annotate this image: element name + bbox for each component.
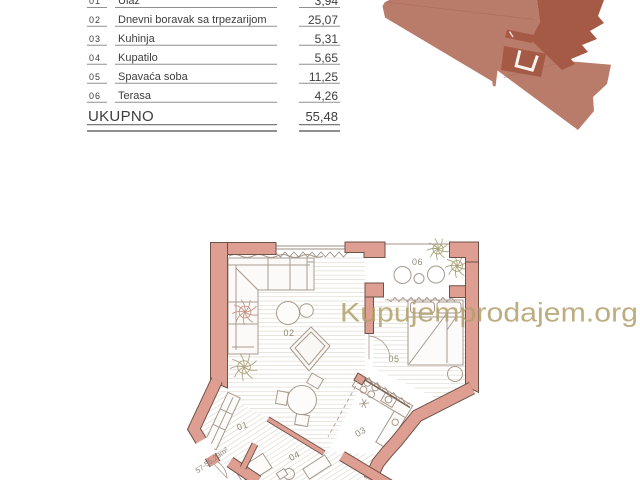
svg-text:UKUPNO: UKUPNO <box>88 108 154 125</box>
svg-text:5,31: 5,31 <box>315 32 339 46</box>
svg-text:02: 02 <box>89 15 101 25</box>
svg-text:55,48: 55,48 <box>305 109 338 124</box>
svg-text:Terasa: Terasa <box>118 90 152 102</box>
svg-text:5,65: 5,65 <box>315 51 339 65</box>
svg-text:Ulaz: Ulaz <box>118 0 140 7</box>
svg-text:05: 05 <box>89 72 101 82</box>
svg-text:Kupujemprodajem.org: Kupujemprodajem.org <box>340 298 638 328</box>
svg-text:25,07: 25,07 <box>308 13 338 27</box>
svg-text:Spavaća soba: Spavaća soba <box>118 71 189 83</box>
svg-text:06: 06 <box>412 257 423 267</box>
svg-text:05: 05 <box>388 354 399 364</box>
svg-text:04: 04 <box>89 53 101 63</box>
svg-text:4,26: 4,26 <box>315 89 339 103</box>
svg-text:3,94: 3,94 <box>315 0 339 8</box>
svg-text:Kupatilo: Kupatilo <box>118 52 158 64</box>
svg-text:Dnevni boravak sa trpezarijom: Dnevni boravak sa trpezarijom <box>118 14 267 26</box>
svg-text:11,25: 11,25 <box>309 70 338 84</box>
svg-text:03: 03 <box>89 34 101 44</box>
svg-text:02: 02 <box>283 328 294 338</box>
svg-text:01: 01 <box>89 0 101 6</box>
svg-text:Kuhinja: Kuhinja <box>118 33 156 45</box>
svg-text:06: 06 <box>89 91 101 101</box>
